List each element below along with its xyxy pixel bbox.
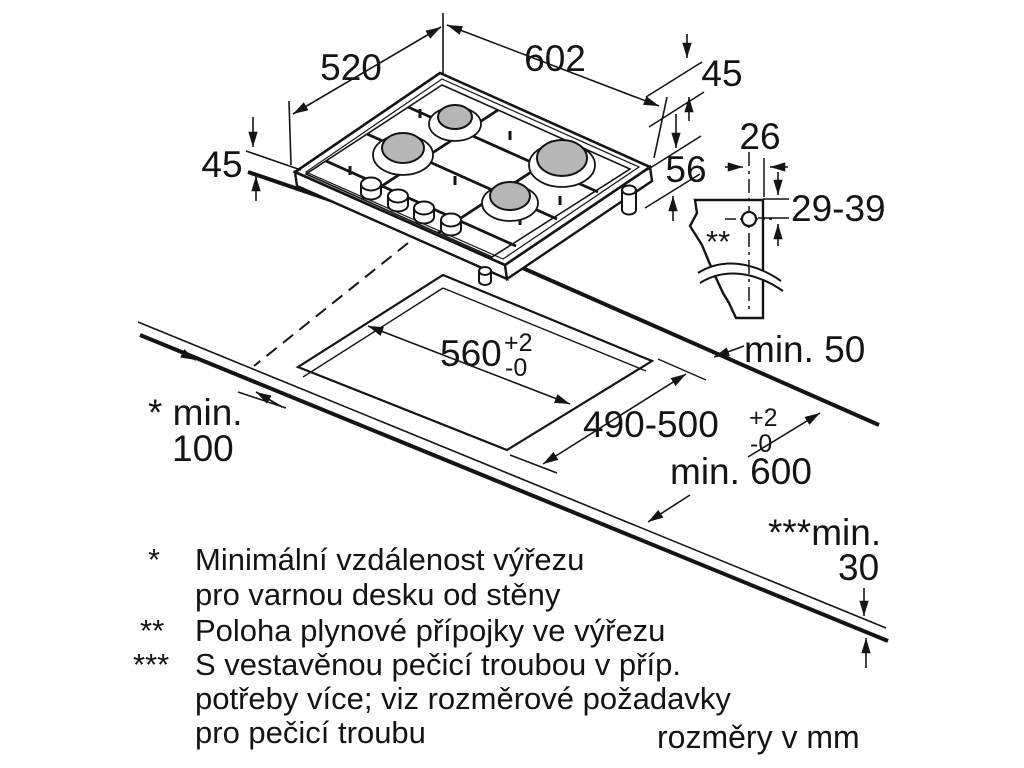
arrow-min-100-outer [165, 345, 196, 360]
gas-position-marker: ** [706, 224, 730, 259]
min-worktop-depth-label: min. 600 [670, 451, 812, 492]
gas-pipe-foot [622, 186, 636, 215]
footnote-triple-star-line2: potřeby více; viz rozměrové požadavky [195, 681, 731, 716]
ref-line-left-surface [246, 151, 301, 170]
hob-drawing [295, 73, 652, 285]
diagram-page: 520 602 45 56 45 26 29-39 ** 560 +2 -0 4… [0, 0, 1024, 768]
arrow-min-600-down [648, 495, 690, 522]
front-foot [479, 267, 491, 285]
dim-hob-width-label: 602 [524, 38, 586, 79]
dim-cutout-width-tol-plus: +2 [504, 329, 533, 357]
dim-cutout-width-label: 560 [440, 333, 502, 374]
dim-height-right-label: 45 [701, 53, 742, 94]
footnotes: * Minimální vzdálenost výřezu pro varnou… [133, 542, 860, 755]
footnote-star-marker: * [148, 542, 160, 577]
dim-total-height-label: 56 [665, 149, 706, 190]
installation-diagram: 520 602 45 56 45 26 29-39 ** 560 +2 -0 4… [0, 0, 1024, 768]
dim-cutout-width-tol-minus: -0 [505, 354, 527, 382]
dim-height-left-label: 45 [201, 144, 242, 185]
burner-front-cap [490, 182, 530, 210]
min-side-clearance-label: * min. [148, 392, 243, 433]
min-front-clearance-value: 30 [838, 547, 879, 588]
control-knob [441, 214, 461, 236]
footnote-double-star-marker: ** [140, 613, 164, 648]
ext-line-min-100 [238, 392, 286, 408]
dim-cutout-depth-label: 490-500 [583, 404, 719, 445]
dim-cutout-depth-tol-plus: +2 [749, 404, 778, 432]
control-knob [414, 202, 434, 224]
arrow-min-50 [714, 346, 744, 357]
dim-gas-offset-h-label: 26 [739, 116, 780, 157]
hob-top-surface [295, 73, 650, 265]
footnote-triple-star-marker: *** [133, 647, 169, 682]
burner-left-cap [382, 133, 424, 163]
ext-line-490-bottom [510, 455, 557, 473]
footnote-star-line1: Minimální vzdálenost výřezu [195, 542, 584, 577]
footnote-triple-star-line1: S vestavěnou pečicí troubou v příp. [195, 647, 681, 682]
footnote-triple-star-line3: pro pečicí troubu [195, 715, 426, 750]
burner-right-cap [537, 140, 587, 176]
control-knob [361, 178, 381, 200]
burner-back-cap [438, 105, 472, 129]
footnote-star-line2: pro varnou desku od stěny [195, 577, 561, 612]
min-side-clearance-value: 100 [172, 428, 234, 469]
units-note: rozměry v mm [657, 719, 860, 755]
footnote-double-star-line1: Poloha plynové přípojky ve výřezu [195, 613, 665, 648]
dim-hob-depth-label: 520 [320, 47, 382, 88]
dim-gas-offset-v-label: 29-39 [791, 188, 886, 229]
min-rear-clearance-label: min. 50 [744, 329, 865, 370]
ref-line-right-1 [646, 62, 702, 97]
control-knob [388, 190, 408, 212]
gas-inlet-point [742, 212, 756, 226]
ext-line-left-corner [289, 101, 291, 165]
